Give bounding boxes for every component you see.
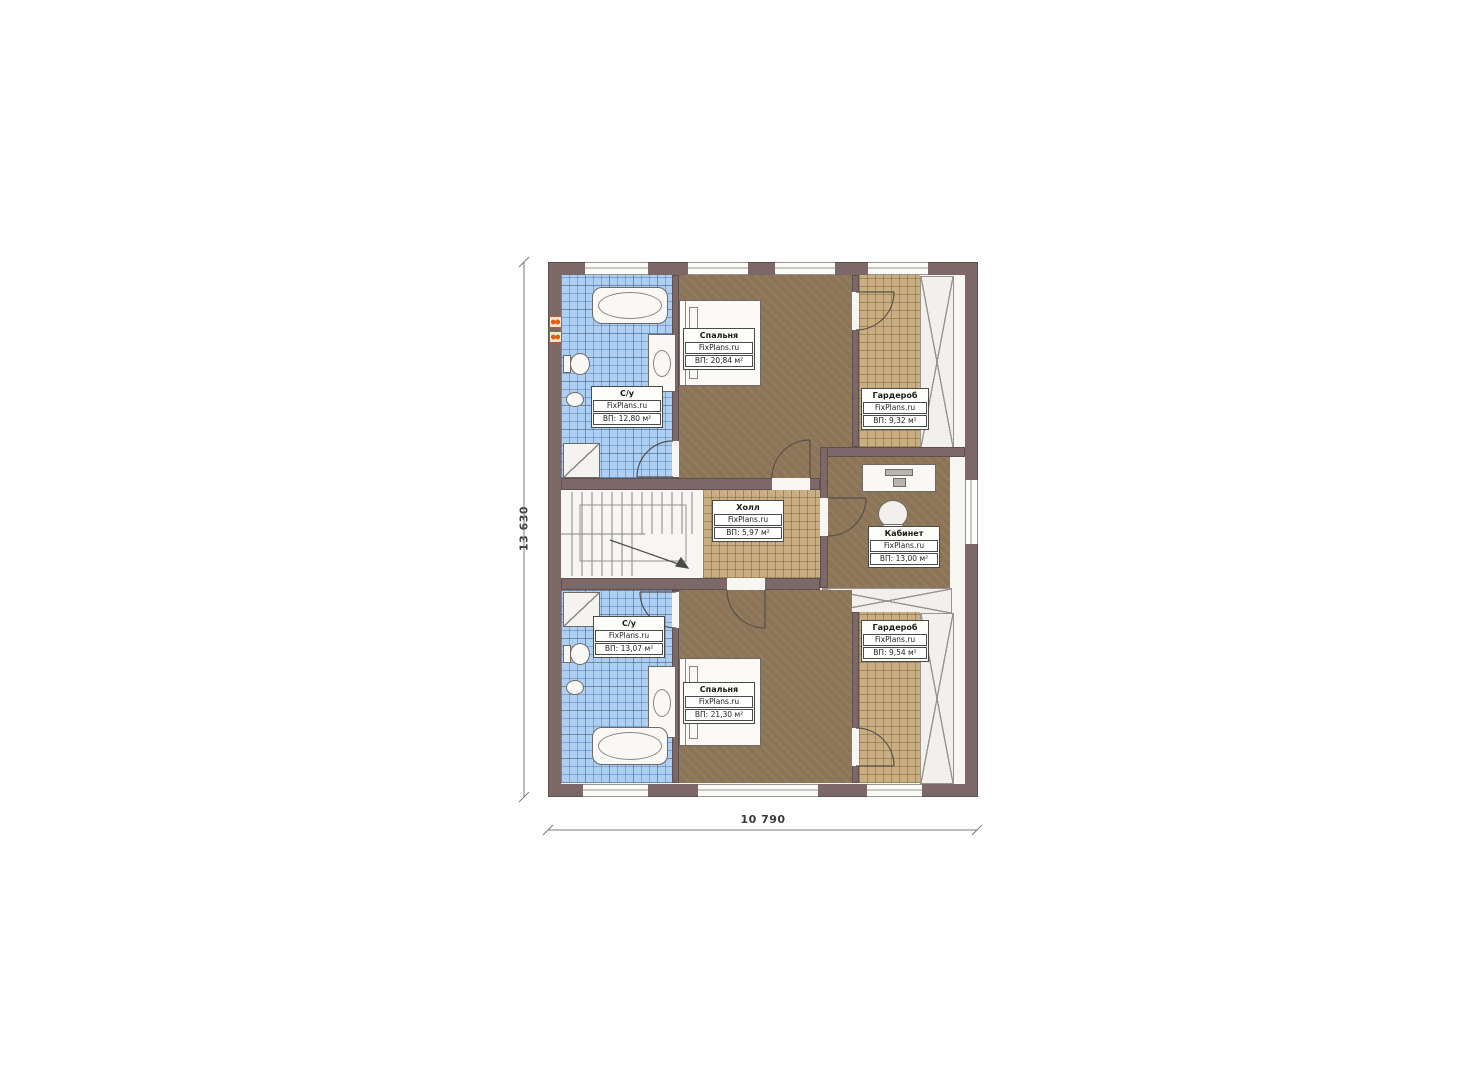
room-area: ВП: 9,54 м² (863, 647, 927, 659)
room-label-hall: Холл FixPlans.ru ВП: 5,97 м² (712, 500, 784, 542)
brand-label: FixPlans.ru (714, 514, 782, 526)
towel-rail-icon (549, 331, 562, 343)
room-label-wardrobe-top: Гардероб FixPlans.ru ВП: 9,32 м² (861, 388, 929, 430)
desk-icon (862, 464, 936, 492)
room-area: ВП: 13,07 м² (595, 643, 663, 655)
room-name: Спальня (685, 684, 753, 695)
brand-label: FixPlans.ru (593, 400, 661, 412)
wall-office-top (820, 447, 965, 457)
brand-label: FixPlans.ru (863, 402, 927, 414)
brand-label: FixPlans.ru (595, 630, 663, 642)
door-opening-office (820, 498, 828, 536)
window-icon (698, 784, 818, 797)
door-opening-bath-top (672, 441, 679, 477)
bidet-icon (566, 392, 584, 407)
room-label-bedroom-bottom: Спальня FixPlans.ru ВП: 21,30 м² (683, 682, 755, 724)
door-opening-bedroom-bottom (727, 578, 765, 590)
window-icon (965, 480, 978, 544)
bathtub-icon (592, 287, 668, 324)
room-stairwell (561, 490, 703, 578)
bidet-icon (566, 680, 584, 695)
door-opening-bedroom-top (772, 478, 810, 490)
brand-label: FixPlans.ru (685, 696, 753, 708)
wall-band-bottom (561, 578, 820, 590)
room-label-bedroom-top: Спальня FixPlans.ru ВП: 20,84 м² (683, 328, 755, 370)
room-area: ВП: 13,00 м² (870, 553, 938, 565)
room-name: С/у (593, 388, 661, 399)
dimension-height: 13 630 (518, 499, 531, 559)
room-label-wardrobe-bottom: Гардероб FixPlans.ru ВП: 9,54 м² (861, 620, 929, 662)
room-label-bath-top: С/у FixPlans.ru ВП: 12,80 м² (591, 386, 663, 428)
door-opening-wardrobe-top (852, 292, 859, 330)
dimension-width: 10 790 (733, 813, 793, 826)
room-name: Гардероб (863, 390, 927, 401)
room-label-bath-bottom: С/у FixPlans.ru ВП: 13,07 м² (593, 616, 665, 658)
toilet-icon (570, 353, 590, 375)
window-icon (583, 784, 648, 797)
brand-label: FixPlans.ru (870, 540, 938, 552)
room-name: Кабинет (870, 528, 938, 539)
window-icon (868, 262, 928, 275)
window-icon (867, 784, 922, 797)
room-name: Холл (714, 502, 782, 513)
toilet-icon (570, 643, 590, 665)
room-name: Гардероб (863, 622, 927, 633)
window-icon (585, 262, 648, 275)
room-label-office: Кабинет FixPlans.ru ВП: 13,00 м² (868, 526, 940, 568)
window-icon (688, 262, 748, 275)
vanity-icon (648, 334, 676, 392)
door-opening-wardrobe-bottom (852, 728, 859, 766)
room-area: ВП: 12,80 м² (593, 413, 661, 425)
window-icon (775, 262, 835, 275)
floor-plan-page: Спальня FixPlans.ru ВП: 20,84 м² С/у Fix… (0, 0, 1474, 1080)
room-name: С/у (595, 618, 663, 629)
bathtub-icon (592, 727, 668, 765)
brand-label: FixPlans.ru (685, 342, 753, 354)
room-area: ВП: 20,84 м² (685, 355, 753, 367)
brand-label: FixPlans.ru (863, 634, 927, 646)
room-area: ВП: 5,97 м² (714, 527, 782, 539)
shower-icon (563, 443, 600, 478)
room-area: ВП: 21,30 м² (685, 709, 753, 721)
door-opening-bath-bottom (672, 592, 679, 628)
towel-rail-icon (549, 316, 562, 328)
room-area: ВП: 9,32 м² (863, 415, 927, 427)
room-name: Спальня (685, 330, 753, 341)
